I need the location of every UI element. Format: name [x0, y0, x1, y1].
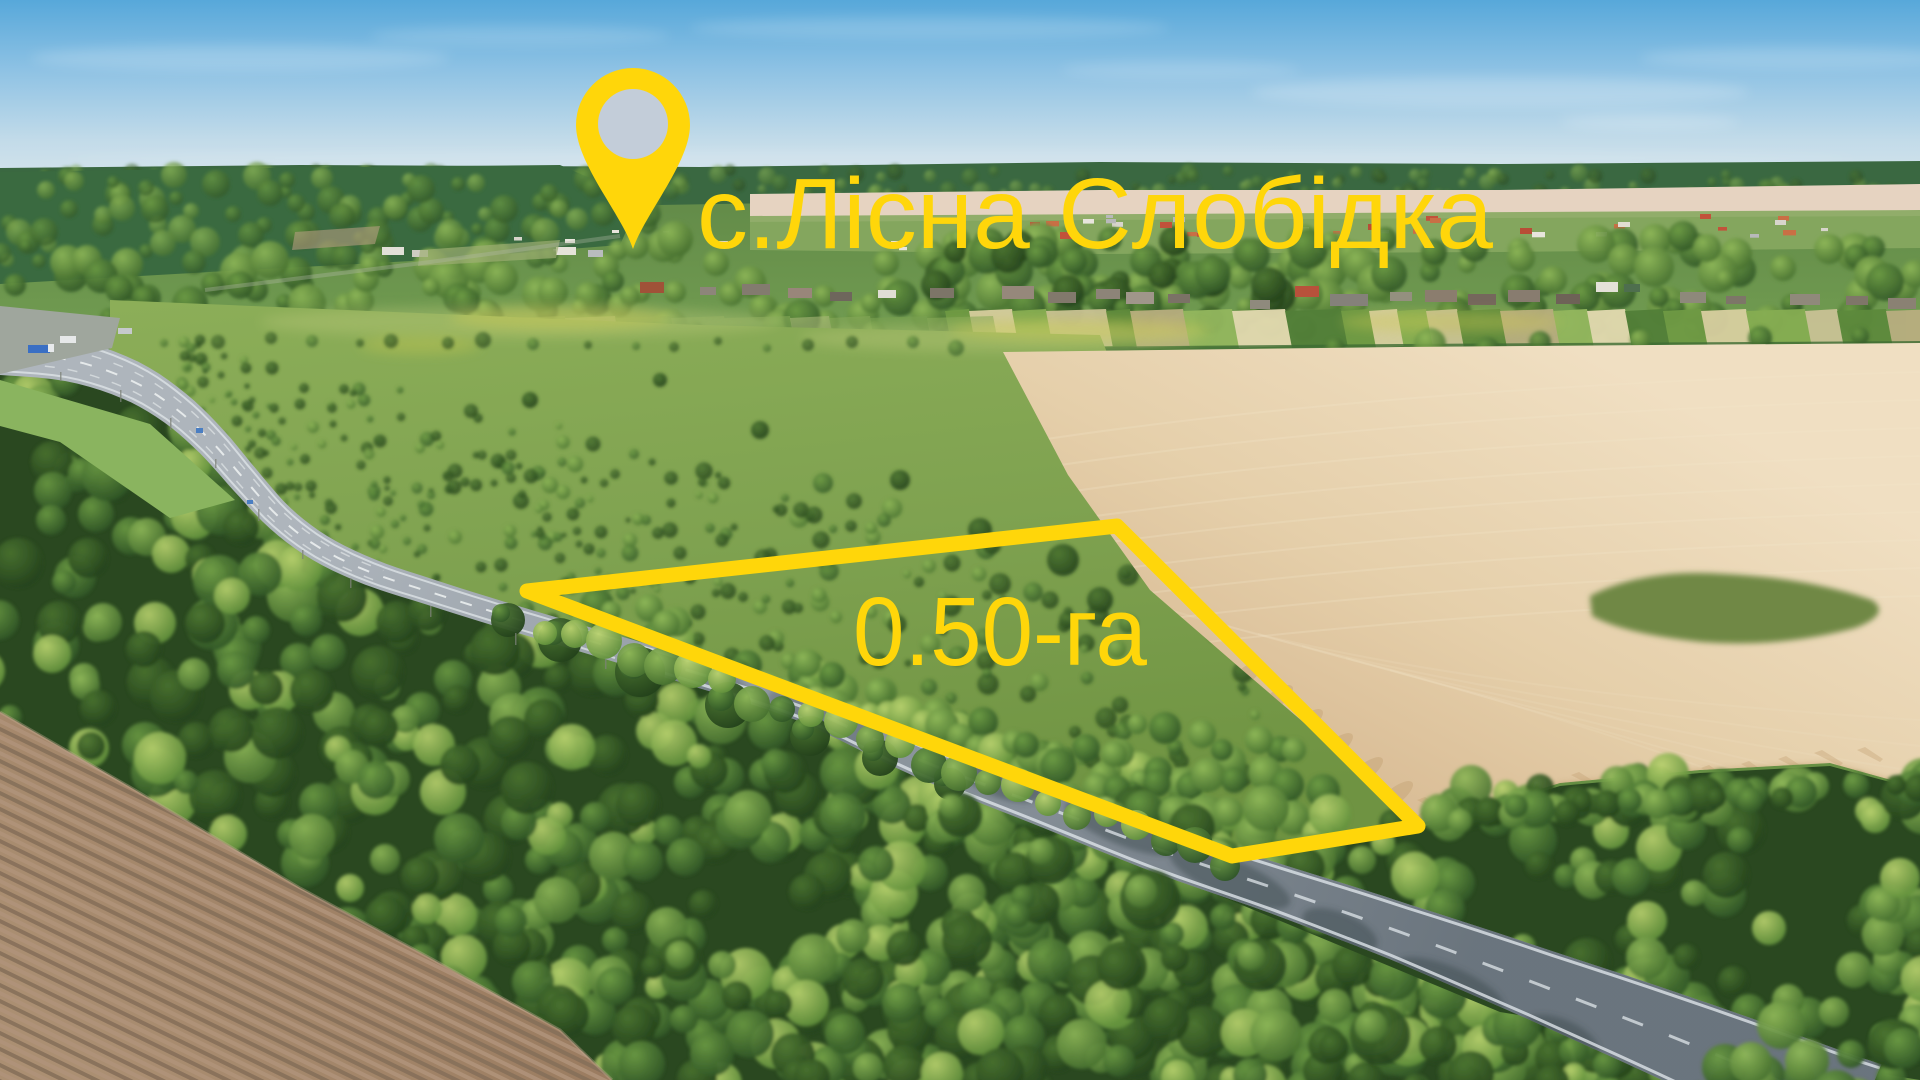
svg-text:с.Лісна Слобідка: с.Лісна Слобідка — [697, 158, 1493, 270]
svg-text:0.50-га: 0.50-га — [853, 577, 1147, 686]
